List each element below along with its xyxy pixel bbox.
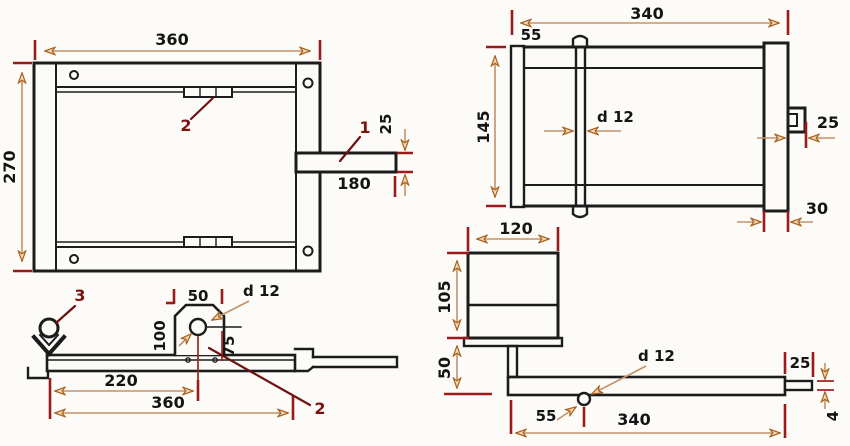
corner-hole <box>70 71 78 79</box>
dim-frame-height: 270 <box>0 150 19 183</box>
part-label-clip: 2 <box>180 116 191 135</box>
dim-top-width: 340 <box>630 4 663 23</box>
handle-bar <box>296 153 396 172</box>
corner-hole <box>304 79 313 88</box>
frame-top-view: 340 55 145 d 12 25 30 <box>474 4 839 232</box>
clip-bottom <box>184 237 232 247</box>
dim-handle-height: 25 <box>377 114 395 135</box>
dim-pin-length: 25 <box>790 354 811 372</box>
frame-plan-dimensions: 360 270 25 180 1 2 <box>0 30 413 271</box>
part-label-tab: 2 <box>314 399 325 418</box>
latch-knob <box>40 319 58 337</box>
clip-top <box>184 87 232 97</box>
dim-rod-diameter: d 12 <box>597 108 634 126</box>
long-bar <box>508 377 785 395</box>
dim-hole-offset-bottom: 55 <box>536 407 557 425</box>
dim-handle-length: 180 <box>337 174 370 193</box>
part-label-handle: 1 <box>359 118 370 137</box>
dim-handle-end: 25 <box>817 113 839 132</box>
tab-hole <box>190 319 206 335</box>
rod-tab-bottom <box>573 206 587 217</box>
dim-hole-height: 75 <box>220 336 238 357</box>
frame-left-strip <box>511 46 524 207</box>
latch-part <box>34 319 64 354</box>
assembly-side-linework <box>464 253 812 405</box>
box-body <box>468 253 558 338</box>
dim-tab-height: 100 <box>151 320 169 351</box>
dim-hole-offset: 220 <box>104 371 137 390</box>
handle-end-knob <box>788 108 805 132</box>
dim-bar-hole-diameter: d 12 <box>638 347 675 365</box>
drawing-svg: 360 270 25 180 1 2 <box>0 0 850 446</box>
frame-right-bar <box>764 43 788 211</box>
dim-tab-width: 50 <box>188 287 209 305</box>
dim-box-height: 105 <box>435 280 454 313</box>
dim-side-bar-width: 30 <box>806 199 828 218</box>
frame-outline <box>34 63 320 271</box>
corner-hole <box>304 247 313 256</box>
assembly-side-view: 120 105 50 55 d 12 340 25 4 <box>435 219 842 438</box>
support-post <box>508 346 517 377</box>
bar-right-step-and-handle <box>295 349 397 371</box>
end-pin <box>785 381 812 390</box>
dim-top-height: 145 <box>474 110 493 143</box>
technical-drawing-sheet: 360 270 25 180 1 2 <box>0 0 850 446</box>
frame-plan-view: 360 270 25 180 1 2 <box>0 30 413 271</box>
frame-plan-linework <box>34 63 396 271</box>
bar-hole <box>578 393 590 405</box>
corner-hole <box>70 255 78 263</box>
dim-long-bar-length: 340 <box>617 410 650 429</box>
dim-tab-hole-diameter: d 12 <box>243 282 280 300</box>
bar-end-hook <box>28 368 48 378</box>
bar-side-linework <box>28 305 397 378</box>
bar-side-view: 50 d 12 100 75 220 360 3 2 <box>28 282 397 420</box>
dim-bar-length: 360 <box>151 393 184 412</box>
cross-rod <box>576 47 585 206</box>
frame-top-linework <box>511 36 805 217</box>
dim-post-height: 50 <box>435 357 454 379</box>
rod-tab-top <box>573 36 587 47</box>
dim-rod-offset: 55 <box>521 26 542 44</box>
dim-box-width: 120 <box>499 219 532 238</box>
flat-bar <box>47 355 295 371</box>
frame-top-dimensions: 340 55 145 d 12 25 30 <box>474 4 839 232</box>
part-label-latch: 3 <box>74 286 85 305</box>
dim-frame-width: 360 <box>155 30 188 49</box>
dim-pin-thickness: 4 <box>824 411 842 421</box>
